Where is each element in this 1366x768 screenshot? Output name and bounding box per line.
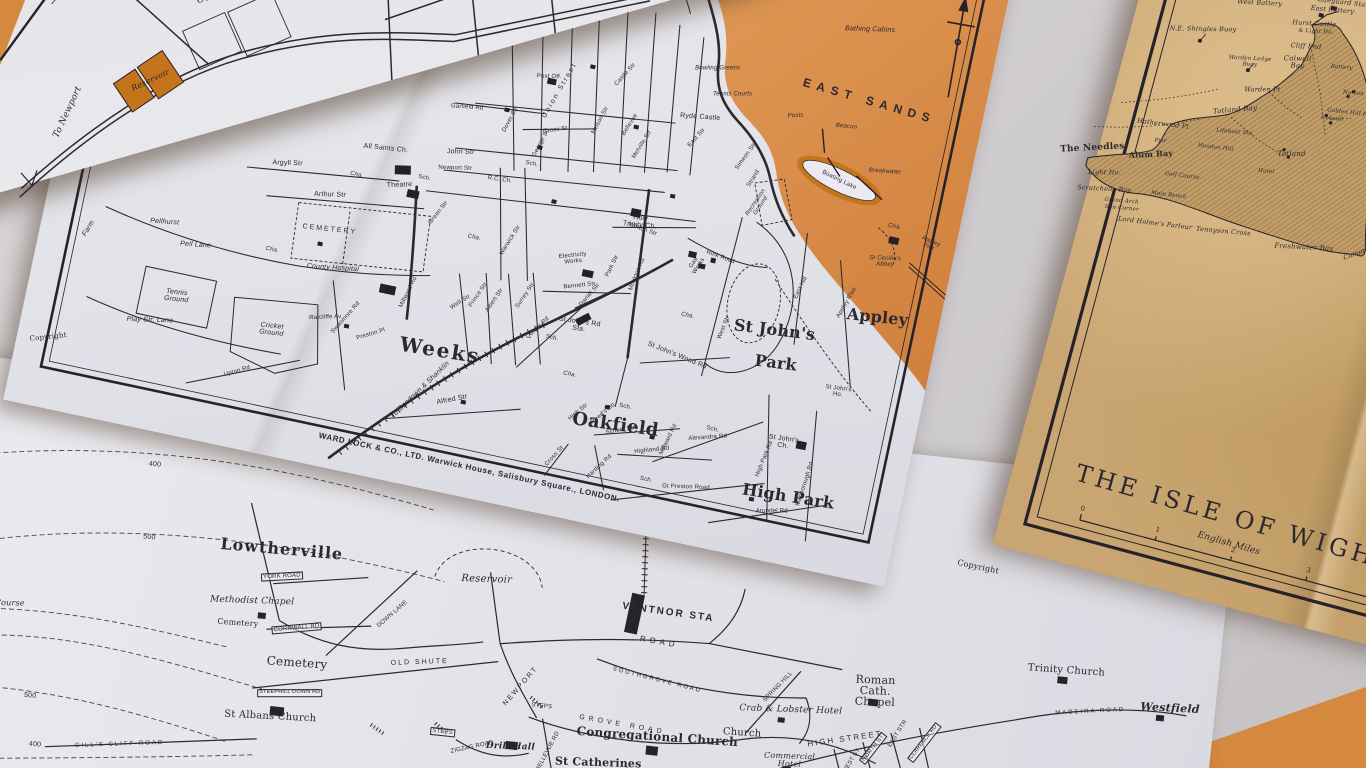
label-cliff-end: Cliff End [1290, 42, 1321, 50]
label-golf-course: Golf Course [0, 599, 25, 608]
label-argyll-str: Argyll Str [272, 159, 303, 167]
label-tennis-courts: Tennis Courts [713, 91, 752, 97]
label-contour-500b: 500 [24, 692, 37, 700]
label-alum-bay: Alum Bay [1129, 149, 1174, 159]
label-bowling-greens: Bowling Greens [695, 66, 740, 72]
label-warden-pt: Warden Pt [1244, 86, 1280, 93]
label-drill-hall: Drill Hall [486, 742, 535, 753]
label-roman-cath-chapel: Roman Cath. Chapel [838, 673, 913, 709]
label-commercial-hotel: Commercial Hotel [763, 752, 816, 768]
label-reservoir: Reservoir [461, 574, 512, 586]
label-westfield: Westfield [1140, 701, 1200, 715]
label-contour-500: 500 [143, 533, 156, 541]
label-posts: Posts [787, 113, 803, 120]
label-totland: Totland [1278, 151, 1306, 158]
label-pier: Pier [1154, 139, 1167, 146]
label-warden-ledge-buoy: Warden Ledge Buoy [1228, 56, 1273, 70]
label-post-off: Post Off. [537, 73, 562, 80]
label-newport-str: Newport Str [438, 165, 472, 172]
photo-of-vintage-maps: Golf Course 400 500 500 400 Lowtherville… [0, 0, 1366, 768]
label-light-ho: Light Ho. [1088, 169, 1121, 176]
label-ne-shingles-buoy: N.E. Shingles Buoy [1170, 25, 1237, 33]
label-john-str: John Str [447, 148, 475, 156]
label-contour-400: 400 [148, 460, 161, 468]
label-contour-400b: 400 [29, 740, 42, 748]
label-st-cecilias-abbey: St Cecilia's Abbey [865, 255, 905, 269]
label-ratcliffe-av: Ratcliffe Av [309, 314, 341, 321]
label-colwell-bay: Colwell Bay [1277, 55, 1317, 70]
label-steephill-down-rd: STEEPHILL DOWN RD [257, 689, 322, 697]
label-arthur-str: Arthur Str [314, 191, 346, 199]
label-st-catherines: St Catherines [555, 756, 642, 768]
label-theatre: Theatre [387, 181, 413, 189]
label-scratchells-bay: Scratchells Bay [1077, 184, 1132, 193]
label-arundel-rd: Arundel Rd [756, 509, 788, 515]
